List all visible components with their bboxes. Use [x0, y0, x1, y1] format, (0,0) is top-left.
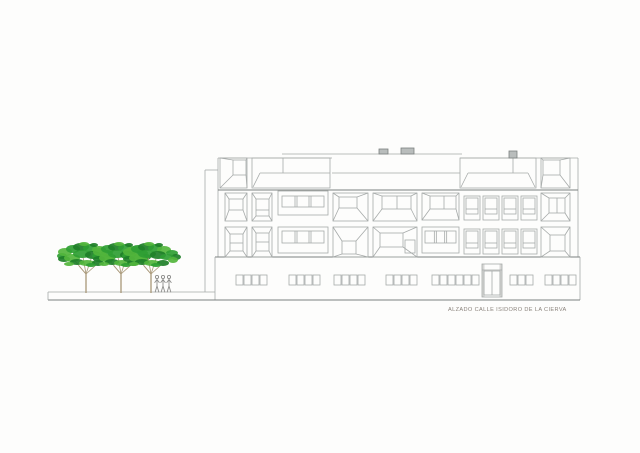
splay-window-panel	[541, 158, 570, 188]
reveal-line	[269, 216, 272, 221]
reveal-line	[333, 193, 339, 197]
window-frame	[282, 196, 324, 207]
tree-foliage	[99, 262, 109, 266]
tree-foliage	[168, 257, 178, 263]
reveal-line	[456, 193, 459, 196]
ground-pane	[561, 275, 568, 285]
square-window	[483, 196, 499, 220]
window-frame	[425, 231, 456, 243]
tree-foliage	[114, 242, 124, 246]
person-figure	[161, 275, 165, 292]
square-window	[502, 229, 518, 254]
splay-window-panel	[422, 193, 459, 220]
reveal-line	[541, 213, 549, 221]
reveal-line	[565, 213, 570, 221]
roof-vent	[379, 149, 388, 154]
ground-pane	[569, 275, 576, 285]
reveal-line	[243, 251, 247, 257]
ground-pane	[545, 275, 552, 285]
reveal-line	[541, 227, 550, 235]
reveal-line	[225, 251, 230, 257]
window-frame	[504, 198, 516, 214]
drawing-rect	[230, 234, 243, 251]
reveal-line	[403, 227, 417, 233]
ground-window-group	[289, 275, 320, 285]
facade-line	[461, 173, 468, 187]
elevation-sheet: ALZADO CALLE ISIDORO DE LA CIERVA	[0, 0, 640, 453]
square-window	[464, 229, 480, 254]
roof-vent	[509, 151, 517, 158]
drawing-rect	[380, 233, 403, 247]
ground-pane	[440, 275, 447, 285]
splay-window-panel	[333, 193, 368, 221]
splay-window-panel	[225, 227, 247, 257]
drawing-rect	[233, 160, 246, 175]
drawing-rect	[373, 193, 417, 221]
tree-foliage	[125, 243, 133, 247]
ground-pane	[289, 275, 296, 285]
drawing-rect	[382, 196, 411, 209]
window-frame	[466, 231, 478, 248]
reveal-line	[456, 209, 459, 220]
roof-vent	[401, 148, 414, 154]
ground-pane	[526, 275, 533, 285]
caption-label: ALZADO CALLE ISIDORO DE LA CIERVA	[448, 307, 567, 313]
reveal-line	[243, 227, 247, 234]
drawing-rect	[229, 199, 243, 210]
tree-foliage	[79, 242, 89, 246]
square-window	[502, 196, 518, 220]
ground-floor	[236, 264, 576, 297]
paned-window-panel	[278, 191, 328, 215]
ground-pane	[456, 275, 463, 285]
drawing-rect	[521, 196, 537, 220]
paned-window-panel	[278, 227, 328, 253]
window-frame	[485, 198, 497, 214]
person-figure	[167, 275, 171, 292]
reveal-line	[373, 209, 382, 221]
ground-pane	[260, 275, 267, 285]
square-window	[464, 196, 480, 220]
ground-pane	[305, 275, 312, 285]
splay-window-panel	[252, 227, 272, 257]
ground-pane	[236, 275, 243, 285]
person-body	[155, 279, 159, 292]
tree-foliage	[155, 243, 163, 247]
ground-window-group	[432, 275, 479, 285]
reveal-line	[356, 227, 368, 241]
facade-line	[528, 173, 535, 187]
ground-window-group	[236, 275, 267, 285]
ground-pane	[518, 275, 525, 285]
ground-pane	[297, 275, 304, 285]
ground-window-group	[545, 275, 576, 285]
ground-pane	[510, 275, 517, 285]
square-window	[521, 196, 537, 220]
splay-window-panel	[541, 193, 570, 221]
reveal-line	[373, 247, 380, 257]
ground-pane	[464, 275, 471, 285]
reveal-line	[541, 251, 550, 257]
reveal-line	[269, 193, 272, 199]
splay-window-panel	[373, 227, 417, 257]
person-head	[161, 275, 164, 278]
splay-window-panel	[225, 193, 247, 221]
ground-window-group	[510, 275, 533, 285]
drawing-rect	[256, 199, 269, 216]
person-body	[167, 279, 171, 292]
drawing-rect	[422, 193, 459, 220]
ground-pane	[244, 275, 251, 285]
tree	[122, 242, 181, 293]
window-frame	[485, 231, 497, 248]
ground-pane	[342, 275, 349, 285]
ground-window-group	[334, 275, 365, 285]
tree-foliage	[129, 262, 139, 266]
splay-window-panel	[252, 193, 272, 221]
reveal-line	[252, 227, 256, 233]
facade-rect	[405, 240, 415, 253]
window-frame	[523, 231, 535, 248]
window-frame	[504, 231, 516, 248]
roof-vents	[379, 148, 517, 158]
reveal-line	[373, 227, 380, 233]
reveal-line	[243, 210, 247, 221]
reveal-line	[269, 227, 272, 233]
person-figure	[155, 275, 159, 292]
reveal-line	[373, 193, 382, 196]
reveal-line	[243, 193, 247, 199]
pedestrians-group	[155, 275, 171, 292]
reveal-line	[220, 175, 233, 188]
tree-foliage	[144, 242, 154, 246]
tree-foliage	[64, 262, 74, 266]
splay-window-panel	[373, 193, 417, 221]
ground-pane	[358, 275, 365, 285]
reveal-line	[252, 193, 256, 199]
reveal-line	[560, 175, 570, 188]
ground-pane	[394, 275, 401, 285]
reveal-line	[411, 209, 417, 221]
person-head	[167, 275, 170, 278]
reveal-line	[565, 193, 570, 198]
ground-pane	[448, 275, 455, 285]
splay-window-panel	[541, 227, 570, 257]
drawing-rect	[430, 196, 456, 209]
trees-group	[57, 242, 181, 293]
reveal-line	[225, 210, 229, 221]
splay-window-panel	[333, 227, 368, 257]
reveal-line	[565, 227, 570, 235]
ground-pane	[350, 275, 357, 285]
ground-window-group	[386, 275, 417, 285]
reveal-line	[541, 193, 549, 198]
drawing-rect	[339, 197, 357, 208]
elevation-drawing: ALZADO CALLE ISIDORO DE LA CIERVA	[0, 0, 640, 453]
ground-pane	[313, 275, 320, 285]
drawing-rect	[543, 160, 560, 175]
reveal-line	[357, 193, 368, 197]
reveal-line	[225, 227, 230, 234]
reveal-line	[252, 216, 256, 221]
facade-line	[253, 173, 260, 187]
drawing-rect	[521, 229, 537, 254]
entrance-door	[482, 264, 502, 297]
window-frame	[466, 198, 478, 214]
ground-pane	[252, 275, 259, 285]
ground-pane	[334, 275, 341, 285]
reveal-line	[565, 251, 570, 257]
drawing-rect	[278, 191, 328, 215]
tree-foliage	[151, 263, 161, 267]
drawing-rect	[541, 227, 570, 257]
reveal-line	[422, 209, 430, 220]
tree-foliage	[86, 263, 96, 267]
window-frame	[523, 198, 535, 214]
square-window	[483, 229, 499, 254]
ground-pane	[386, 275, 393, 285]
reveal-line	[411, 193, 417, 196]
reveal-line	[422, 193, 430, 196]
tree-foliage	[90, 243, 98, 247]
person-body	[161, 279, 165, 292]
drawing-rect	[342, 241, 356, 254]
ground-pane	[472, 275, 479, 285]
reveal-line	[333, 227, 342, 241]
ground-pane	[410, 275, 417, 285]
drawing-rect	[333, 227, 368, 257]
reveal-line	[269, 251, 272, 257]
window-frame	[282, 231, 324, 243]
square-window	[521, 229, 537, 254]
person-head	[155, 275, 158, 278]
splay-window-panel	[220, 158, 247, 188]
ground-pane	[432, 275, 439, 285]
reveal-line	[225, 193, 229, 199]
ground-pane	[553, 275, 560, 285]
paned-window-panel	[422, 227, 459, 253]
ground-pane	[402, 275, 409, 285]
reveal-line	[252, 251, 256, 257]
reveal-line	[357, 208, 368, 221]
drawing-rect	[550, 235, 565, 251]
reveal-line	[333, 208, 339, 221]
drawing-rect	[225, 193, 247, 221]
drawing-rect	[541, 158, 570, 188]
